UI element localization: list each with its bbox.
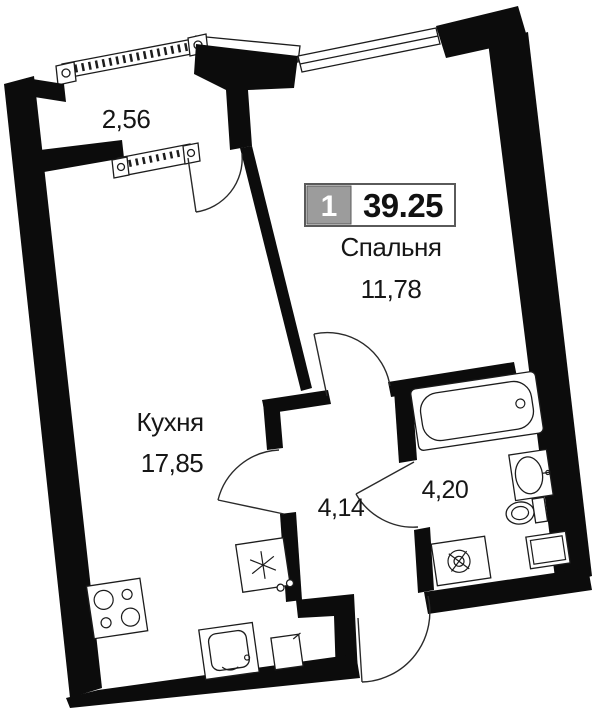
apartment-number: 1: [321, 190, 338, 223]
stove-icon: [86, 578, 147, 638]
balcony-door: [188, 154, 242, 212]
bathroom-area-label: 4,20: [422, 476, 469, 504]
sink-icon: [509, 449, 554, 500]
kitchen-door: [218, 450, 284, 514]
door-leaf: [314, 334, 327, 396]
kitchen-name-label: Кухня: [136, 407, 203, 437]
total-area-value: 39.25: [363, 187, 443, 224]
balcony-area-label: 2,56: [102, 104, 151, 134]
balcony-kitchen-wall: [40, 140, 124, 172]
door-swing-arc: [196, 154, 242, 212]
door-leaf: [356, 462, 414, 494]
door-swing-arc: [314, 333, 390, 386]
kitchen-cabinet-icon: [271, 633, 305, 670]
cabinet-icon: [526, 531, 570, 569]
kitchen-sink-icon: [199, 622, 259, 679]
bathroom-door: [356, 462, 418, 527]
bedroom-door: [314, 333, 390, 396]
door-swing-arc: [356, 494, 418, 527]
door-swing-arc: [362, 596, 430, 682]
bedroom-area-label: 11,78: [361, 274, 422, 304]
door-swing-arc: [218, 450, 279, 500]
bedroom-kitchen-partition: [240, 146, 312, 391]
hallway-area-label: 4,14: [318, 494, 365, 522]
washing-machine-icon: [431, 536, 491, 586]
door-leaf: [188, 158, 196, 212]
floor-plan: 1 39.25 2,56 Спальня 11,78 Кухня 17,85 4…: [0, 0, 600, 723]
kitchen-window: [112, 143, 200, 178]
entrance-door: [358, 596, 430, 682]
door-leaf: [218, 500, 284, 514]
balcony-glazing: [56, 34, 208, 85]
bathroom-west-wall-lower: [414, 527, 434, 593]
bedroom-window: [298, 28, 440, 72]
kitchen-area-label: 17,85: [141, 448, 204, 478]
facade-pier: [194, 44, 298, 150]
area-badge: 1 39.25: [305, 184, 455, 226]
bedroom-name-label: Спальня: [341, 232, 442, 262]
toilet-icon: [504, 497, 547, 527]
